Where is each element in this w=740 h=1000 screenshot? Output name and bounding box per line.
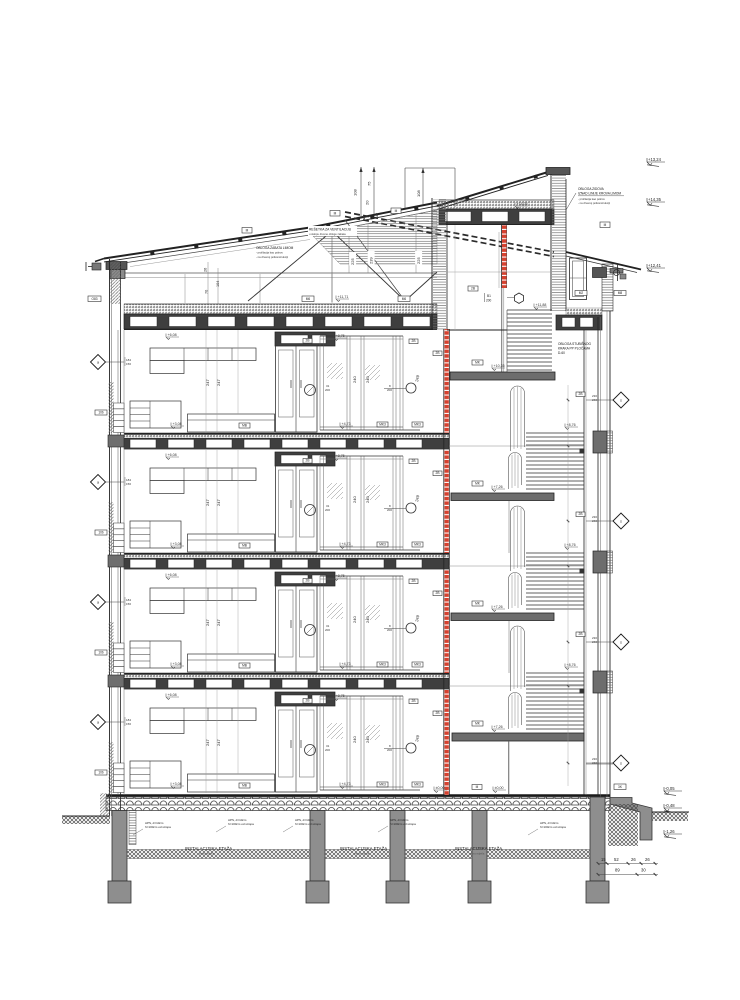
svg-text:REŠETKA ZA VENTILACIJU: REŠETKA ZA VENTILACIJU bbox=[309, 227, 352, 232]
svg-text:2B: 2B bbox=[412, 339, 416, 343]
svg-text:+6,08: +6,08 bbox=[168, 573, 177, 577]
svg-text:M: M bbox=[395, 209, 398, 213]
svg-text:-0,05: -0,05 bbox=[665, 786, 675, 791]
svg-text:a: a bbox=[97, 721, 99, 725]
svg-text:MK3: MK3 bbox=[414, 543, 421, 547]
svg-text:200: 200 bbox=[486, 299, 492, 303]
svg-text:- na drvenoj potkonstrukciji: - na drvenoj potkonstrukciji bbox=[256, 255, 288, 259]
svg-text:240: 240 bbox=[352, 736, 357, 743]
svg-text:OBLOGA STUBIŠNOG: OBLOGA STUBIŠNOG bbox=[558, 341, 591, 346]
svg-text:- na drvenoj potkonstrukciji: - na drvenoj potkonstrukciji bbox=[578, 201, 610, 205]
svg-text:+11,88: +11,88 bbox=[536, 303, 547, 307]
svg-text:+8,75: +8,75 bbox=[336, 334, 345, 338]
svg-text:KRAKA PP PLOČAMA: KRAKA PP PLOČAMA bbox=[558, 346, 591, 351]
svg-text:239: 239 bbox=[369, 257, 374, 264]
svg-text:225: 225 bbox=[416, 257, 421, 264]
svg-text:a: a bbox=[97, 361, 99, 365]
svg-text:240: 240 bbox=[352, 496, 357, 503]
svg-text:MK3: MK3 bbox=[414, 423, 421, 427]
svg-text:+4,73: +4,73 bbox=[342, 422, 351, 426]
svg-text:- profilacija kao pokrov: - profilacija kao pokrov bbox=[578, 197, 606, 201]
svg-text:+7,26: +7,26 bbox=[494, 485, 503, 489]
svg-text:M: M bbox=[334, 212, 337, 216]
svg-text:240: 240 bbox=[592, 761, 597, 765]
svg-text:2B: 2B bbox=[412, 699, 416, 703]
svg-text:MK3: MK3 bbox=[379, 783, 386, 787]
svg-text:20: 20 bbox=[365, 200, 370, 205]
svg-text:10b: 10b bbox=[98, 411, 104, 415]
svg-text:15: 15 bbox=[601, 857, 606, 862]
svg-text:O83: O83 bbox=[91, 297, 97, 301]
svg-text:s: s bbox=[620, 520, 622, 524]
svg-text:10b: 10b bbox=[98, 771, 104, 775]
svg-text:M6: M6 bbox=[306, 297, 311, 301]
svg-text:240: 240 bbox=[352, 616, 357, 623]
svg-text:2B: 2B bbox=[306, 459, 310, 463]
svg-text:INSTALACIJSKA ETAŽA: INSTALACIJSKA ETAŽA bbox=[185, 846, 232, 851]
svg-text:10b: 10b bbox=[98, 531, 104, 535]
svg-text:108: 108 bbox=[416, 190, 421, 197]
svg-text:240: 240 bbox=[592, 398, 597, 402]
svg-text:2B: 2B bbox=[579, 632, 583, 636]
svg-text:MB: MB bbox=[242, 544, 247, 548]
svg-text:156: 156 bbox=[126, 482, 131, 486]
svg-text:2B: 2B bbox=[412, 459, 416, 463]
svg-text:247: 247 bbox=[205, 499, 210, 506]
svg-text:+8,75: +8,75 bbox=[336, 694, 345, 698]
svg-text:MK3: MK3 bbox=[414, 783, 421, 787]
svg-text:+8,75: +8,75 bbox=[336, 574, 345, 578]
svg-text:240: 240 bbox=[365, 736, 370, 743]
svg-text:247: 247 bbox=[216, 379, 221, 386]
svg-text:+12,41: +12,41 bbox=[648, 263, 662, 268]
svg-text:108: 108 bbox=[353, 189, 358, 196]
svg-text:a: a bbox=[97, 601, 99, 605]
svg-text:+10,35: +10,35 bbox=[494, 364, 505, 368]
svg-text:±0,00: ±0,00 bbox=[436, 786, 445, 790]
svg-text:B1: B1 bbox=[487, 294, 491, 298]
svg-text:s: s bbox=[620, 762, 622, 766]
svg-text:2B: 2B bbox=[436, 471, 440, 475]
svg-text:2B: 2B bbox=[579, 512, 583, 516]
svg-text:OBLOGA ZIDOVA: OBLOGA ZIDOVA bbox=[578, 187, 605, 191]
svg-text:156: 156 bbox=[126, 722, 131, 726]
svg-text:2B: 2B bbox=[306, 699, 310, 703]
svg-text:+7,26: +7,26 bbox=[494, 725, 503, 729]
svg-text:IZNAD LINIJE KROVA LIMOM: IZNAD LINIJE KROVA LIMOM bbox=[578, 192, 621, 196]
svg-text:MB: MB bbox=[242, 424, 247, 428]
svg-text:s: s bbox=[620, 399, 622, 403]
svg-text:M8: M8 bbox=[618, 291, 623, 295]
svg-text:+3,08: +3,08 bbox=[173, 542, 182, 546]
svg-text:u sklopu drvene obloge zabata: u sklopu drvene obloge zabata bbox=[309, 232, 346, 236]
svg-text:h=100cm od stropa: h=100cm od stropa bbox=[295, 822, 321, 826]
svg-text:+14,05: +14,05 bbox=[517, 202, 528, 206]
svg-text:-1,26: -1,26 bbox=[665, 829, 675, 834]
svg-text:- profilacija kao pokrov: - profilacija kao pokrov bbox=[256, 250, 284, 254]
svg-text:visina svijetla: visina svijetla bbox=[354, 852, 370, 856]
svg-text:+3,08: +3,08 bbox=[173, 782, 182, 786]
svg-text:10b: 10b bbox=[98, 651, 104, 655]
svg-text:240: 240 bbox=[592, 640, 597, 644]
svg-text:89: 89 bbox=[615, 868, 620, 873]
svg-text:s: s bbox=[620, 641, 622, 645]
svg-text:h=100cm od stropa: h=100cm od stropa bbox=[145, 825, 171, 829]
svg-text:26: 26 bbox=[631, 857, 636, 862]
svg-text:247: 247 bbox=[216, 619, 221, 626]
svg-text:52: 52 bbox=[614, 857, 619, 862]
svg-text:D-60: D-60 bbox=[558, 351, 565, 355]
svg-text:240: 240 bbox=[352, 376, 357, 383]
svg-text:156: 156 bbox=[126, 602, 131, 606]
svg-text:M6: M6 bbox=[402, 297, 407, 301]
svg-text:+6,08: +6,08 bbox=[168, 333, 177, 337]
svg-text:M: M bbox=[246, 229, 249, 233]
svg-text:200: 200 bbox=[325, 508, 330, 512]
svg-text:±0,00: ±0,00 bbox=[495, 786, 504, 790]
svg-text:2B: 2B bbox=[436, 351, 440, 355]
svg-text:MK3: MK3 bbox=[379, 543, 386, 547]
svg-text:M: M bbox=[476, 785, 479, 789]
svg-text:75: 75 bbox=[367, 181, 372, 186]
svg-text:INSTALACIJSKA ETAŽA: INSTALACIJSKA ETAŽA bbox=[340, 846, 387, 851]
svg-text:26: 26 bbox=[645, 857, 650, 862]
svg-text:+13,24: +13,24 bbox=[648, 157, 662, 162]
svg-text:2B: 2B bbox=[306, 339, 310, 343]
svg-text:247: 247 bbox=[205, 739, 210, 746]
svg-text:247: 247 bbox=[216, 499, 221, 506]
svg-text:240: 240 bbox=[365, 496, 370, 503]
svg-text:2B: 2B bbox=[306, 579, 310, 583]
svg-text:240: 240 bbox=[365, 376, 370, 383]
svg-text:240: 240 bbox=[592, 519, 597, 523]
svg-text:+3,08: +3,08 bbox=[173, 662, 182, 666]
svg-text:+6,08: +6,08 bbox=[168, 693, 177, 697]
svg-text:h=100cm od stropa: h=100cm od stropa bbox=[228, 822, 254, 826]
svg-text:MK3: MK3 bbox=[379, 423, 386, 427]
svg-text:26: 26 bbox=[204, 268, 208, 272]
svg-text:2B: 2B bbox=[436, 711, 440, 715]
svg-text:-0,48: -0,48 bbox=[665, 803, 675, 808]
svg-text:+4,73: +4,73 bbox=[342, 662, 351, 666]
svg-text:225: 225 bbox=[350, 258, 355, 265]
svg-text:200: 200 bbox=[325, 628, 330, 632]
svg-text:2B: 2B bbox=[436, 591, 440, 595]
svg-text:+3,08: +3,08 bbox=[173, 422, 182, 426]
svg-text:247: 247 bbox=[205, 619, 210, 626]
svg-text:2B: 2B bbox=[471, 287, 475, 291]
svg-text:a: a bbox=[97, 481, 99, 485]
svg-text:MK3: MK3 bbox=[379, 663, 386, 667]
svg-text:visina svijetla: visina svijetla bbox=[199, 852, 215, 856]
svg-text:240: 240 bbox=[365, 616, 370, 623]
svg-text:MK3: MK3 bbox=[414, 663, 421, 667]
svg-text:h=100cm od stropa: h=100cm od stropa bbox=[540, 825, 566, 829]
svg-text:247: 247 bbox=[216, 739, 221, 746]
svg-text:+14,35: +14,35 bbox=[648, 197, 662, 202]
svg-text:+4,73: +4,73 bbox=[342, 782, 351, 786]
svg-text:104: 104 bbox=[216, 281, 220, 287]
svg-text:247: 247 bbox=[205, 379, 210, 386]
svg-text:30: 30 bbox=[641, 868, 646, 873]
svg-text:INSTALACIJSKA ETAŽA: INSTALACIJSKA ETAŽA bbox=[455, 846, 502, 851]
svg-text:visina svijetla: visina svijetla bbox=[469, 852, 485, 856]
svg-text:156: 156 bbox=[126, 362, 131, 366]
svg-text:2B: 2B bbox=[412, 579, 416, 583]
svg-text:h=100cm od stropa: h=100cm od stropa bbox=[390, 822, 416, 826]
svg-text:OBLOGA ZABATA LIMOM: OBLOGA ZABATA LIMOM bbox=[256, 246, 294, 250]
svg-text:MB: MB bbox=[242, 784, 247, 788]
svg-text:200: 200 bbox=[325, 748, 330, 752]
svg-text:M: M bbox=[604, 223, 607, 227]
svg-text:+8,75: +8,75 bbox=[336, 454, 345, 458]
svg-text:200: 200 bbox=[325, 388, 330, 392]
svg-text:+6,08: +6,08 bbox=[168, 453, 177, 457]
svg-text:+4,73: +4,73 bbox=[342, 542, 351, 546]
svg-text:M2: M2 bbox=[579, 291, 584, 295]
svg-text:+11,71: +11,71 bbox=[338, 295, 349, 299]
svg-text:2B: 2B bbox=[579, 392, 583, 396]
svg-text:MB: MB bbox=[242, 664, 247, 668]
svg-text:+7,26: +7,26 bbox=[494, 605, 503, 609]
svg-text:70: 70 bbox=[205, 290, 209, 294]
